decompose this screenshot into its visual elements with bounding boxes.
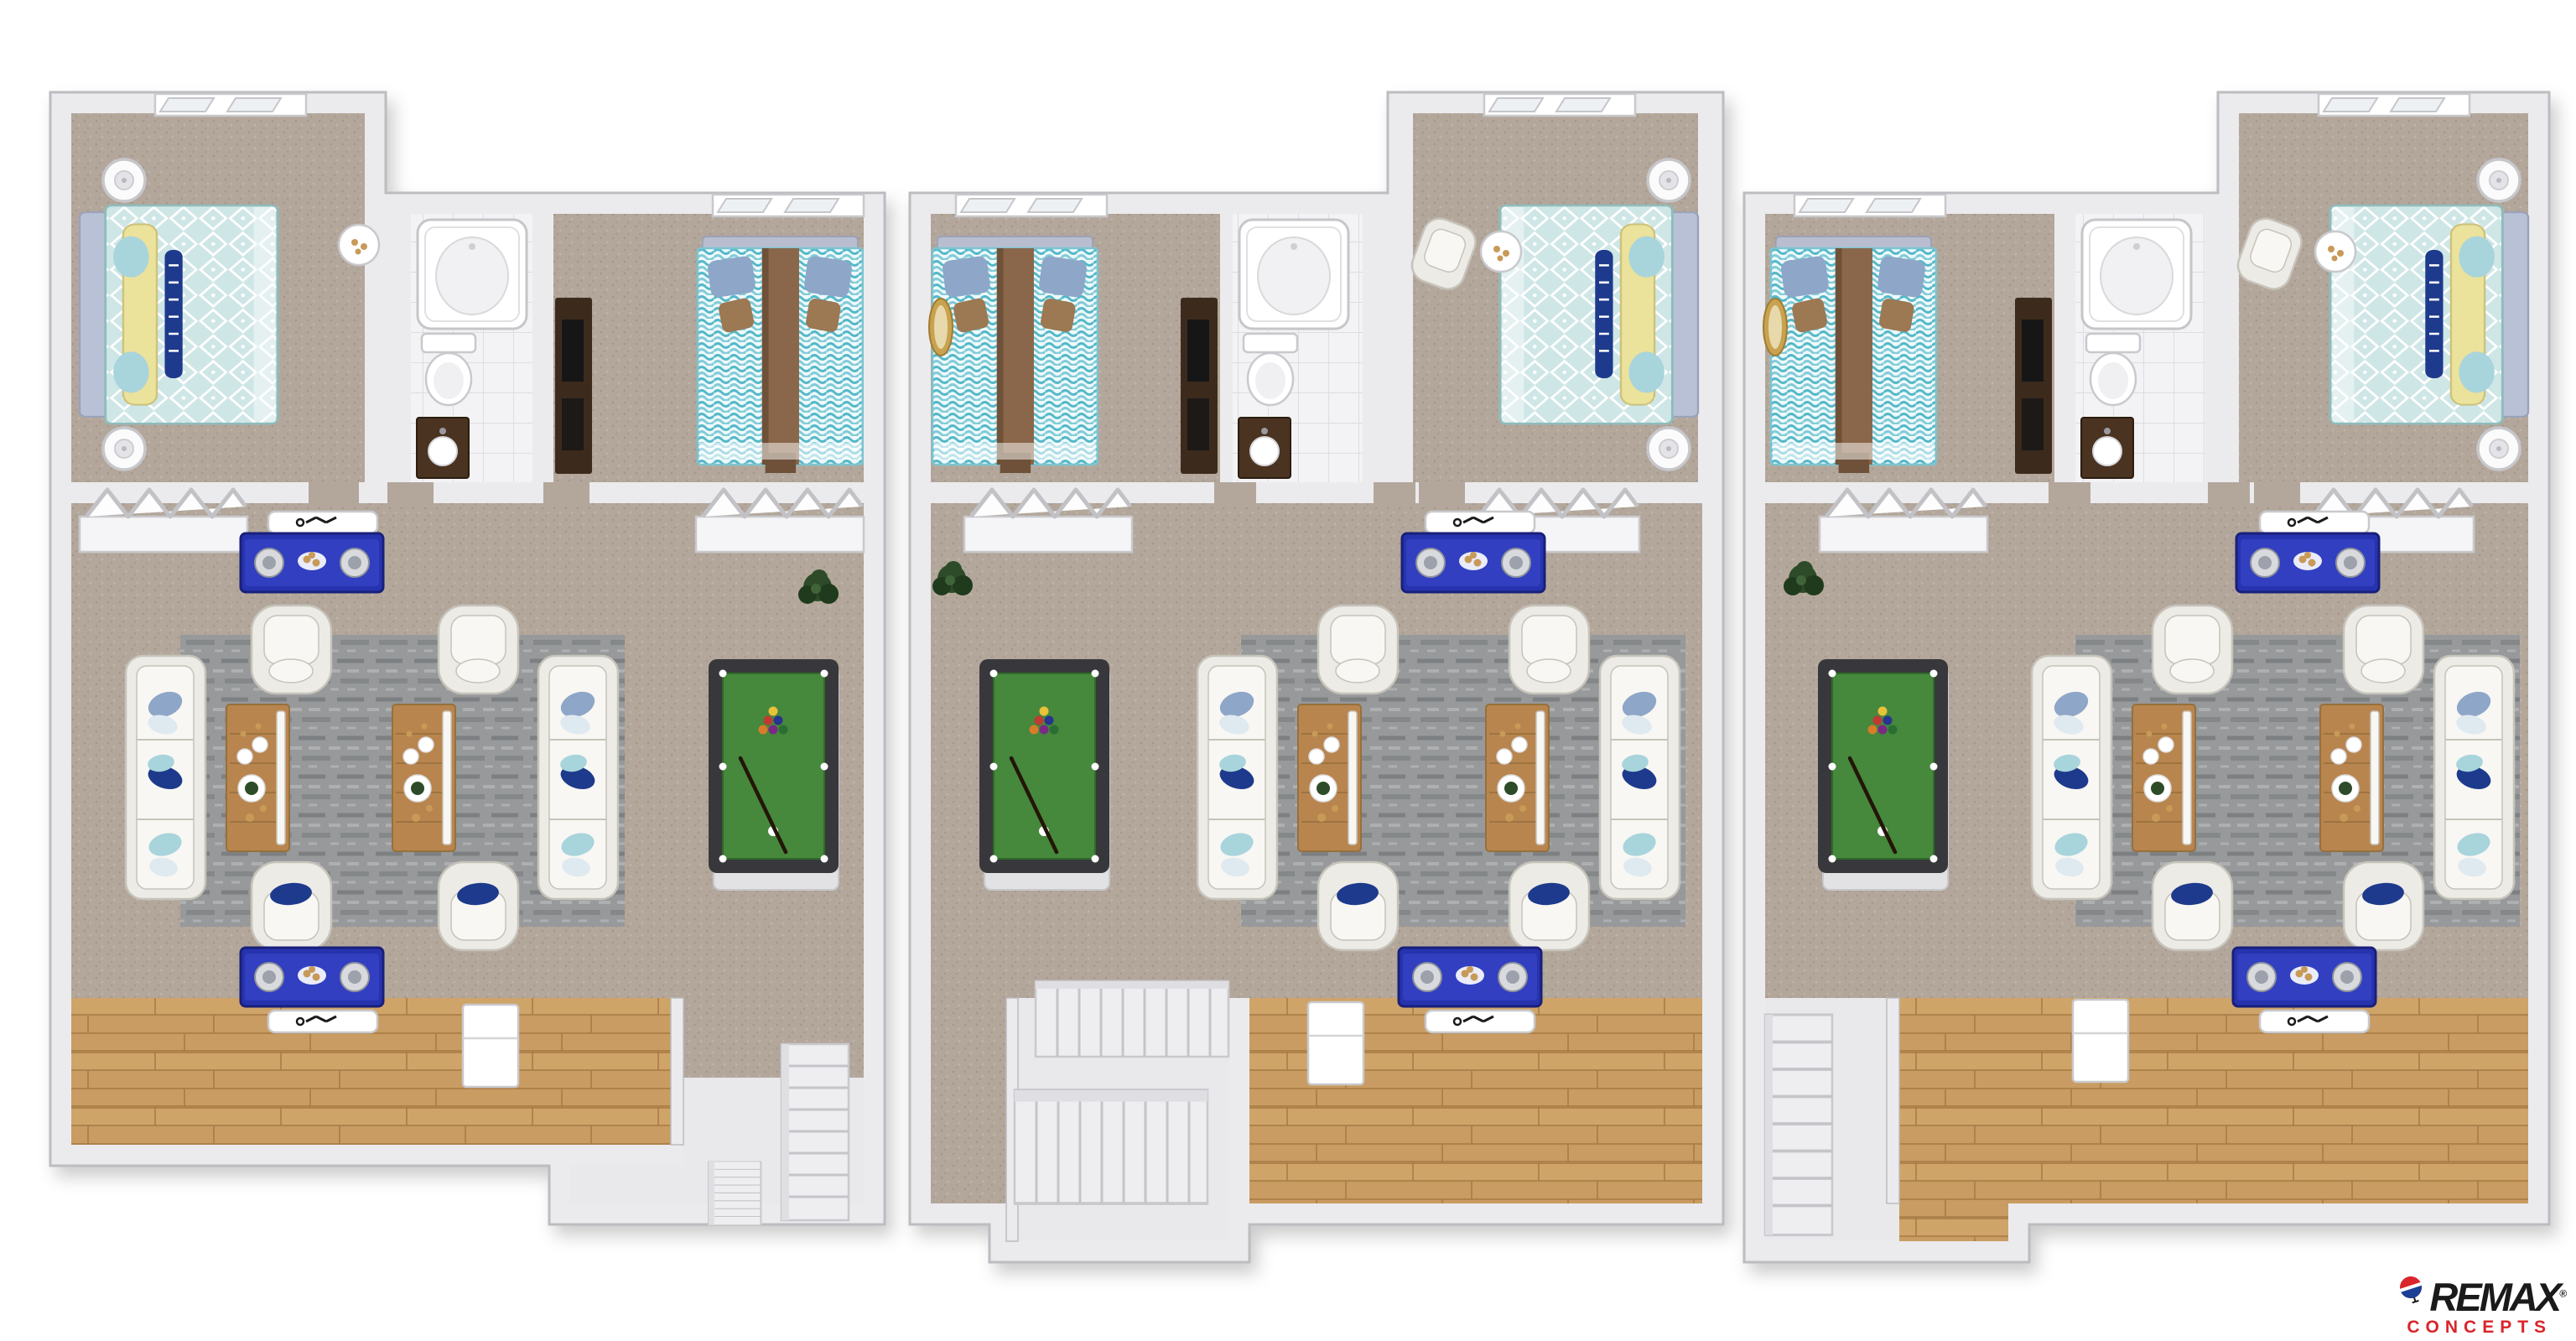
decor-tray <box>268 1011 377 1032</box>
stairwell-floor <box>570 1166 683 1203</box>
armchair <box>1318 606 1398 694</box>
vanity-sink <box>417 418 469 478</box>
remax-concepts-label: CONCEPTS <box>2394 1318 2564 1336</box>
staircase <box>1036 981 1228 1057</box>
wave-bed <box>932 236 1098 473</box>
doorway <box>1419 482 1465 505</box>
three-unit-floor-plan <box>50 92 2549 1262</box>
table-lamp <box>1648 428 1690 470</box>
armchair <box>252 862 331 950</box>
kitchen-floor <box>1899 1203 2008 1241</box>
toilet <box>1244 334 1297 405</box>
doorway <box>543 482 589 505</box>
coffee-table <box>2132 704 2195 851</box>
armchair <box>1318 862 1398 950</box>
interior-wall <box>671 998 683 1145</box>
armchair <box>1509 862 1589 950</box>
sofa <box>538 656 618 899</box>
doorway <box>387 482 434 505</box>
bathtub <box>1239 220 1348 329</box>
window <box>155 94 306 116</box>
side-table <box>2315 231 2355 272</box>
media-console <box>2236 533 2379 592</box>
refrigerator <box>463 1005 518 1087</box>
vanity-sink <box>2081 418 2133 478</box>
wall-mirror <box>929 299 953 356</box>
armchair <box>439 606 518 694</box>
media-console <box>241 948 383 1006</box>
doorway <box>1374 482 1415 505</box>
armchair <box>2153 862 2232 950</box>
armchair <box>2153 606 2232 694</box>
table-lamp <box>103 428 145 470</box>
media-console <box>241 533 383 592</box>
bathtub <box>2082 220 2191 329</box>
unit-2 <box>910 92 1723 1262</box>
sofa <box>2434 656 2514 899</box>
wave-bed <box>1771 236 1936 473</box>
media-console <box>1402 533 1545 592</box>
media-console <box>1399 948 1541 1006</box>
window <box>956 195 1107 216</box>
pool-table <box>709 659 839 890</box>
hall-floor <box>931 998 1010 1203</box>
unit-1 <box>50 92 885 1225</box>
sofa <box>1600 656 1680 899</box>
master-bed <box>80 205 278 424</box>
armchair <box>2344 606 2423 694</box>
window <box>713 195 864 216</box>
unit-3 <box>1744 92 2549 1262</box>
doorway <box>1214 482 1256 505</box>
refrigerator <box>1308 1002 1363 1084</box>
remax-logo: REMAX® CONCEPTS <box>2394 1277 2564 1336</box>
remax-wordmark: REMAX® <box>2429 1277 2564 1317</box>
coffee-table <box>226 704 289 851</box>
bathtub <box>418 220 527 329</box>
window <box>2319 94 2470 116</box>
wave-bed <box>698 236 863 473</box>
armchair <box>1509 606 1589 694</box>
pool-table <box>979 659 1109 890</box>
dresser-tv <box>2015 298 2052 474</box>
coffee-table <box>392 704 455 851</box>
pool-table <box>1818 659 1948 890</box>
master-bed <box>1500 205 1698 424</box>
wall-mirror <box>1763 299 1787 356</box>
toilet <box>2086 334 2140 405</box>
doorway <box>309 482 359 505</box>
sofa <box>2032 656 2111 899</box>
remax-balloon-icon <box>2394 1272 2428 1309</box>
registered-mark: ® <box>2559 1287 2564 1299</box>
staircase <box>782 1044 849 1220</box>
table-lamp <box>1648 159 1690 201</box>
staircase-lower <box>1015 1090 1207 1203</box>
decor-tray <box>1426 512 1535 533</box>
dresser-tv <box>1181 298 1218 474</box>
sofa <box>1197 656 1277 899</box>
table-lamp <box>2478 159 2520 201</box>
table-lamp <box>103 159 145 201</box>
staircase <box>1765 1015 1832 1235</box>
floor-plan-svg <box>0 0 2576 1341</box>
toilet <box>422 334 475 405</box>
decor-tray <box>1426 1011 1535 1032</box>
coffee-table <box>1486 704 1549 851</box>
decor-tray <box>2260 1011 2369 1032</box>
vanity-sink <box>1239 418 1291 478</box>
armchair <box>2344 862 2423 950</box>
armchair <box>439 862 518 950</box>
doorway <box>2049 482 2090 505</box>
kitchen-floor <box>1899 998 2528 1203</box>
table-lamp <box>2478 428 2520 470</box>
armchair <box>252 606 331 694</box>
coffee-table <box>2320 704 2383 851</box>
coffee-table <box>1298 704 1361 851</box>
staircase-lower <box>709 1162 761 1225</box>
doorway <box>2208 482 2250 505</box>
doorway <box>2254 482 2300 505</box>
sofa <box>126 656 205 899</box>
window <box>1484 94 1635 116</box>
dresser-tv <box>555 298 592 474</box>
side-table <box>1481 231 1521 272</box>
master-bed <box>2330 205 2528 424</box>
floor-plan-canvas: REMAX® CONCEPTS <box>0 0 2576 1341</box>
refrigerator <box>2073 1000 2128 1082</box>
interior-wall <box>1887 998 1899 1203</box>
decor-tray <box>268 512 377 533</box>
side-table <box>339 225 379 265</box>
decor-tray <box>2260 512 2369 533</box>
media-console <box>2233 948 2376 1006</box>
window <box>1794 195 1945 216</box>
